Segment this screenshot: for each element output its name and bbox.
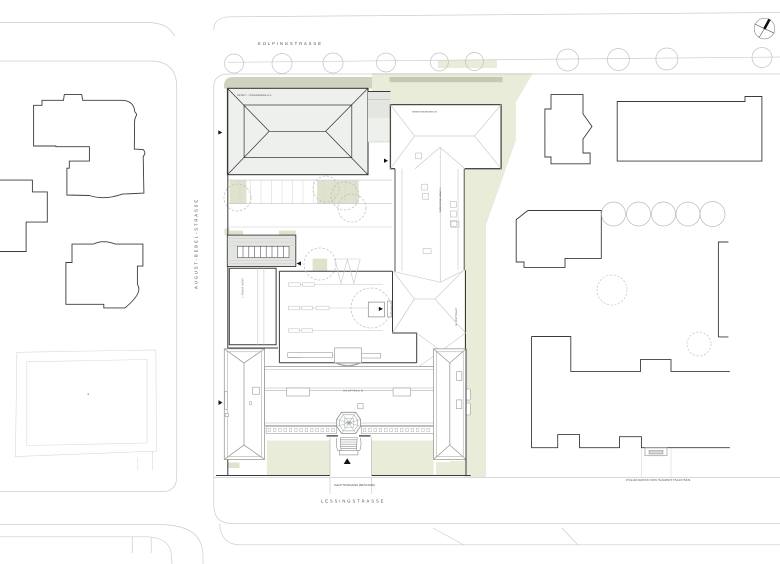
svg-text:HAUPTEINGANG (BESTAND): HAUPTEINGANG (BESTAND) [334,483,375,487]
svg-text:II. ERWEITERUNGSBAU: II. ERWEITERUNGSBAU [439,188,442,213]
svg-text:KOLPINGSTRASSE: KOLPINGSTRASSE [258,41,323,46]
svg-text:I. TRAKT HORT: I. TRAKT HORT [242,278,245,298]
svg-text:ERWEITERUNGSBAU III: ERWEITERUNGSBAU III [412,111,437,114]
svg-text:IV. OSTTRAKT: IV. OSTTRAKT [455,307,458,326]
svg-text:LESSINGSTRASSE: LESSINGSTRASSE [321,499,385,504]
svg-text:AUGUST-BEBEL-STRASSE: AUGUST-BEBEL-STRASSE [194,198,199,289]
svg-text:HAUPTBAU B: HAUPTBAU B [344,389,364,392]
svg-text:POLIZEIDIREKTION SÜDWESTSACHSE: POLIZEIDIREKTION SÜDWESTSACHSEN [626,478,690,482]
svg-text:SPORT- / SCHWIMMHALLE: SPORT- / SCHWIMMHALLE [237,94,272,97]
